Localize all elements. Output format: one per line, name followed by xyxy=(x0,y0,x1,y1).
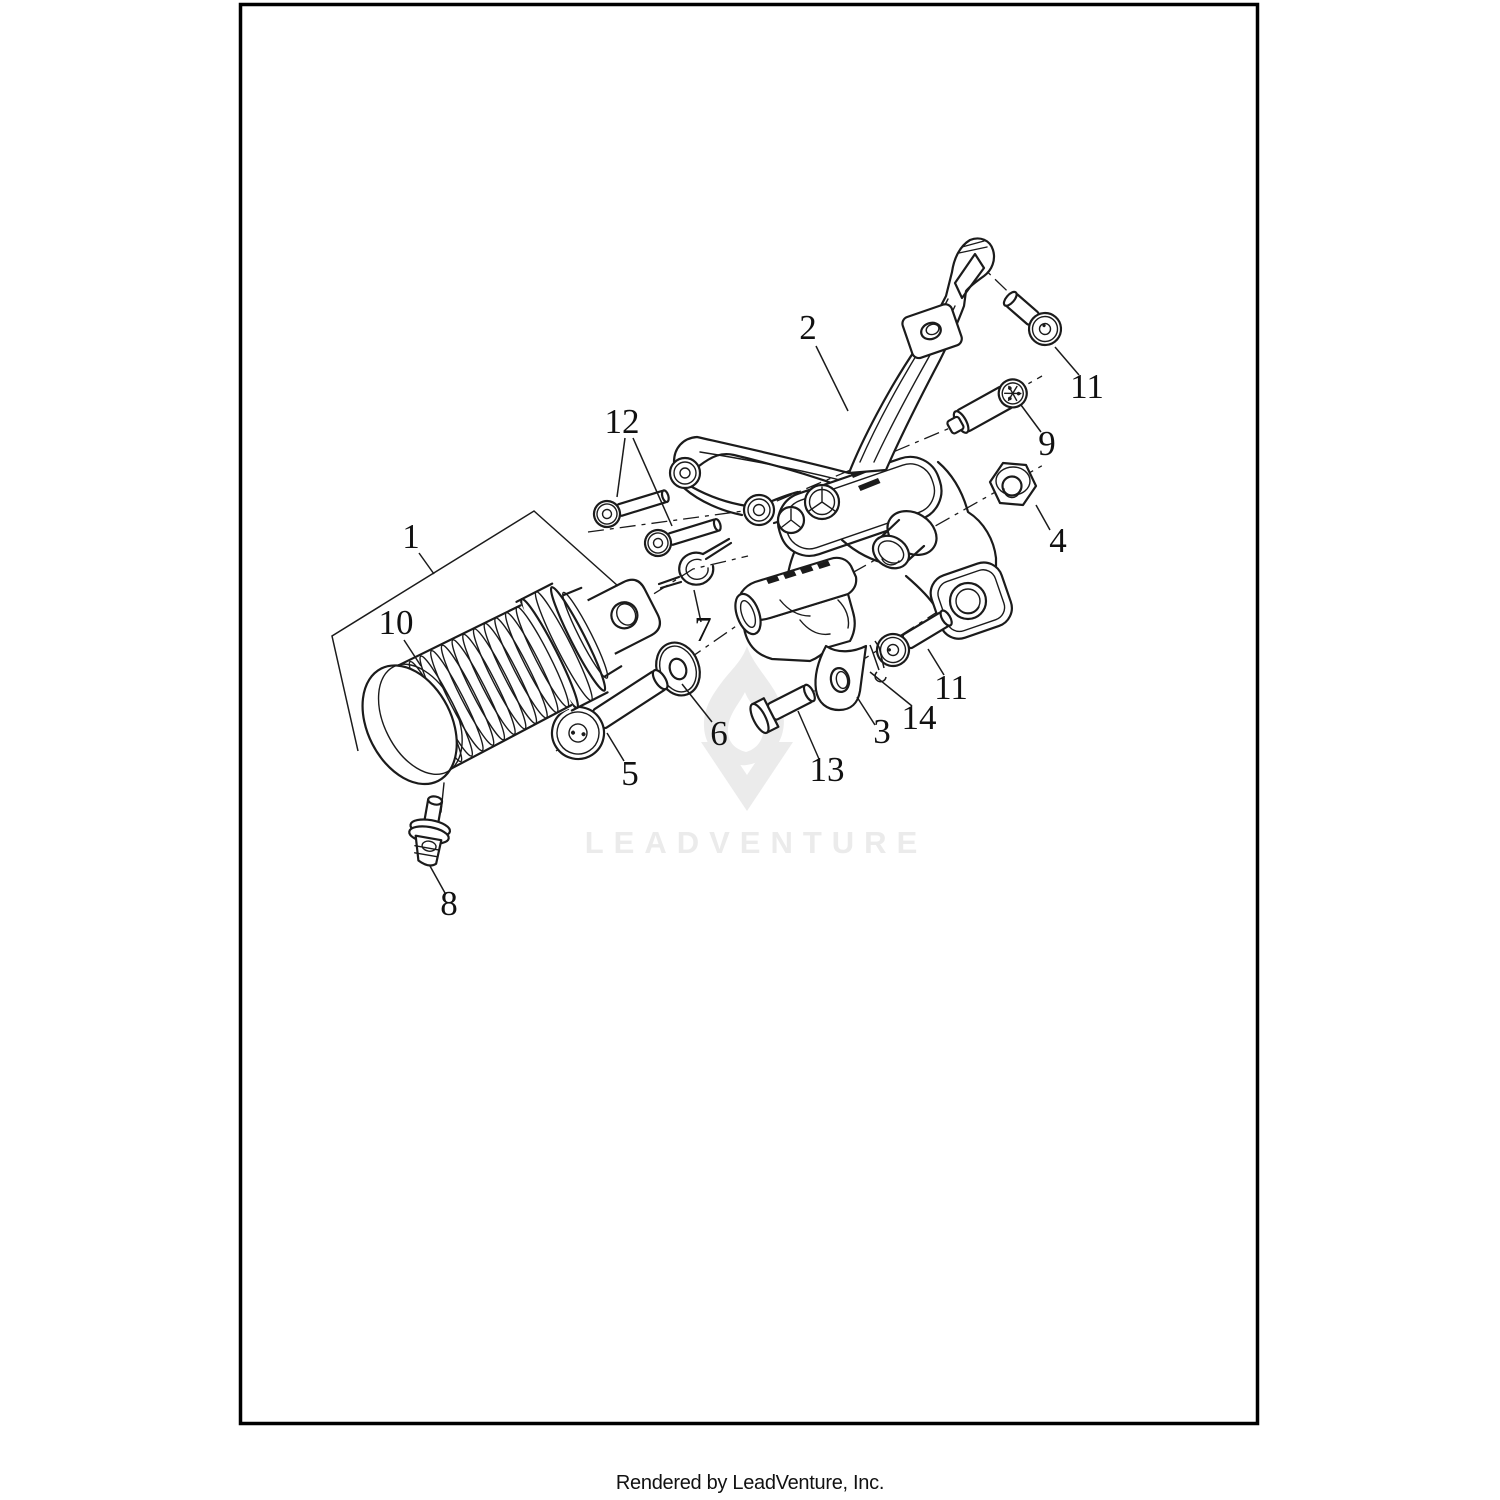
parts-diagram-canvas: LEADVENTURE xyxy=(0,0,1500,1500)
callout-14[interactable]: 14 xyxy=(902,698,937,737)
callout-12[interactable]: 12 xyxy=(605,402,640,441)
callout-7[interactable]: 7 xyxy=(694,610,712,649)
callout-1[interactable]: 1 xyxy=(402,517,420,556)
watermark-text: LEADVENTURE xyxy=(585,825,928,860)
callout-11-lower[interactable]: 11 xyxy=(934,668,968,707)
callout-13[interactable]: 13 xyxy=(810,750,845,789)
callout-4[interactable]: 4 xyxy=(1049,521,1067,560)
callout-10[interactable]: 10 xyxy=(379,603,414,642)
callout-8[interactable]: 8 xyxy=(440,884,458,923)
callout-9[interactable]: 9 xyxy=(1038,424,1056,463)
callout-3[interactable]: 3 xyxy=(873,712,891,751)
callout-11-upper[interactable]: 11 xyxy=(1070,367,1104,406)
callout-6[interactable]: 6 xyxy=(710,714,728,753)
callout-5[interactable]: 5 xyxy=(621,754,639,793)
rendered-by-caption: Rendered by LeadVenture, Inc. xyxy=(616,1472,884,1494)
rendered-parts-page: LEADVENTURE xyxy=(0,0,1500,1500)
callout-2[interactable]: 2 xyxy=(799,308,817,347)
